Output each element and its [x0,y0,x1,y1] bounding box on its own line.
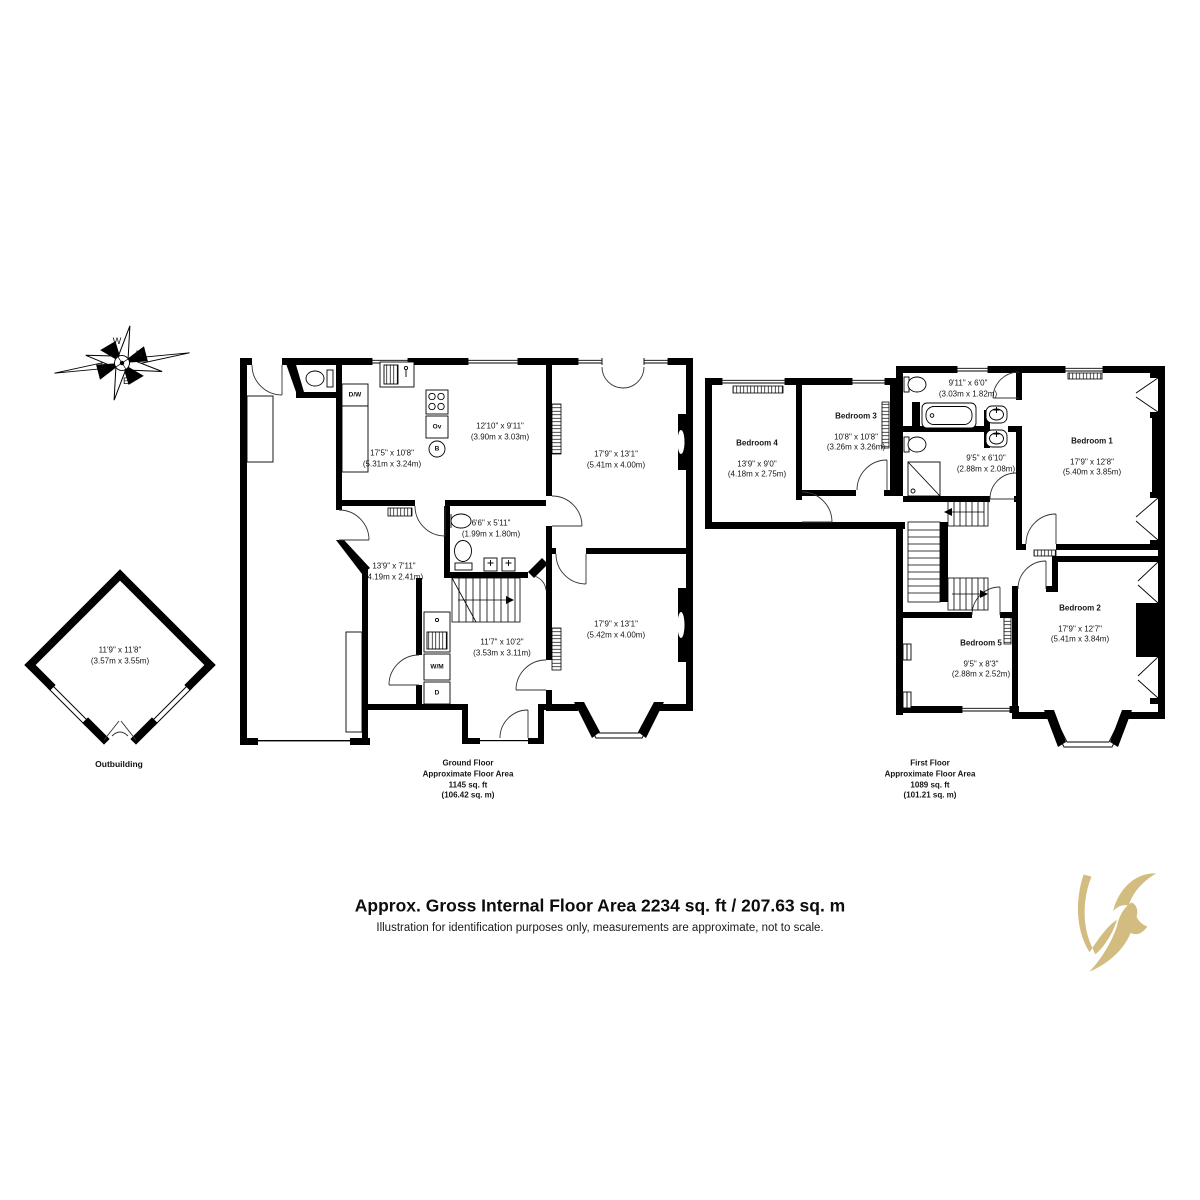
bedroom5-name: Bedroom 5 [952,638,1010,649]
compass-south-label: S [100,361,106,371]
hall-dims-label: 13'9" x 7'11" (4.19m x 2.41m) [365,561,423,582]
compass-west-label: W [113,336,122,346]
kitchen-dims-label: 17'5" x 10'8" (5.31m x 3.24m) [363,448,421,469]
bedroom4-dims: 13'9" x 9'0" (4.18m x 2.75m) [728,459,786,480]
gross-area-title: Approx. Gross Internal Floor Area 2234 s… [355,896,846,917]
floorplan-drawing [0,0,1200,1200]
bedroom2-label: Bedroom 2 17'9" x 12'7" (5.41m x 3.84m) [1051,592,1109,655]
bedroom3-name: Bedroom 3 [827,411,885,422]
boiler-label: B [435,446,440,453]
bedroom2-name: Bedroom 2 [1051,603,1109,614]
compass-rose-icon [51,313,192,414]
oven-label: Ov [433,424,442,431]
dryer-label: D [435,690,440,697]
bedroom3-dims: 10'8" x 10'8" (3.26m x 3.26m) [827,432,885,453]
wc-toilet-icon [327,370,333,387]
disclaimer-note: Illustration for identification purposes… [376,922,823,934]
gf-shower-room-dims-label: 6'6" x 5'11" (1.99m x 1.80m) [462,518,520,539]
hob-icon [426,390,448,414]
outbuilding-name-label: Outbuilding [95,759,143,769]
breakfast-room-dims-label: 12'10" x 9'11" (3.90m x 3.03m) [471,421,529,442]
bedroom2-dims: 17'9" x 12'7" (5.41m x 3.84m) [1051,624,1109,645]
ground-floor-stairs [452,578,520,622]
bedroom4-label: Bedroom 4 13'9" x 9'0" (4.18m x 2.75m) [728,427,786,490]
reception2-dims-label: 17'9" x 13'1" (5.42m x 4.00m) [587,619,645,640]
reception1-dims-label: 17'9" x 13'1" (5.41m x 4.00m) [587,449,645,470]
ground-floor-fixtures [247,362,515,732]
bedroom5-dims: 9'5" x 8'3" (2.88m x 2.52m) [952,659,1010,680]
outbuilding-dims-label: 11'9" x 11'8" (3.57m x 3.55m) [91,645,149,666]
bedroom1-name: Bedroom 1 [1063,436,1121,447]
brand-bird-logo-icon [1078,873,1156,971]
ground-floor-area-label: Ground Floor Approximate Floor Area 1145… [423,758,514,801]
washing-machine-label: W/M [430,664,443,671]
bedroom1-dims: 17'9" x 12'8" (5.40m x 3.85m) [1063,457,1121,478]
ff-bathroom-dims-label: 9'11" x 6'0" (3.03m x 1.82m) [939,378,997,399]
bedroom4-name: Bedroom 4 [728,438,786,449]
garage-bench [247,396,273,462]
bedroom5-label: Bedroom 5 9'5" x 8'3" (2.88m x 2.52m) [952,627,1010,690]
garage-bench-2 [346,632,362,732]
compass-east-label: E [123,376,129,386]
floorplan-page: W N E S 11'9" x 11'8" (3.57m x 3.55m) Ou… [0,0,1200,1200]
first-floor-area-label: First Floor Approximate Floor Area 1089 … [885,758,976,801]
utility-dims-label: 11'7" x 10'2" (3.53m x 3.11m) [473,637,531,658]
bedroom3-label: Bedroom 3 10'8" x 10'8" (3.26m x 3.26m) [827,400,885,463]
compass-north-label: N [136,349,143,359]
outbuilding-windows [48,685,192,727]
ff-shower-room-dims-label: 9'5" x 6'10" (2.88m x 2.08m) [957,453,1015,474]
dishwasher-label: D/W [349,392,362,399]
toilet-icon [455,541,472,562]
bedroom1-label: Bedroom 1 17'9" x 12'8" (5.40m x 3.85m) [1063,425,1121,488]
outbuilding-doors [104,721,136,740]
